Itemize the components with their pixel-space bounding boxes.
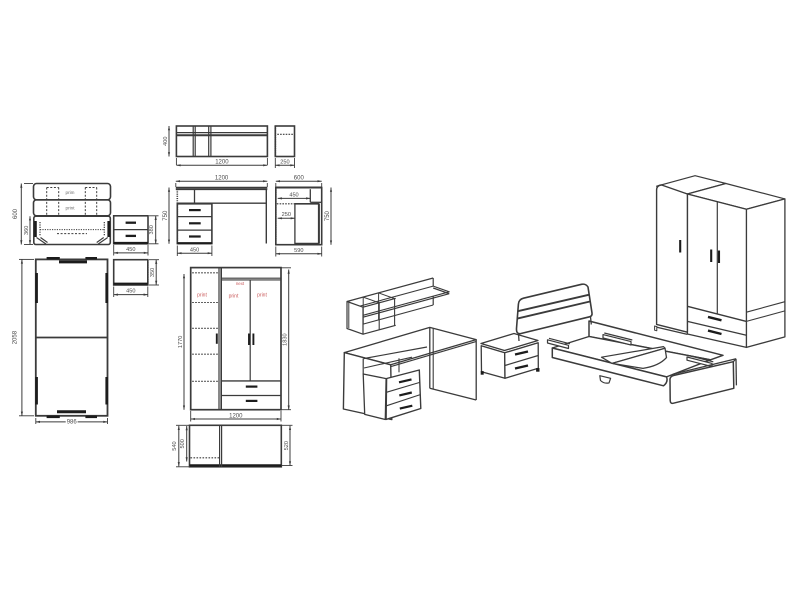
svg-text:print: print [229, 293, 239, 299]
svg-text:400: 400 [163, 137, 169, 146]
svg-text:print: print [257, 293, 267, 299]
svg-text:450: 450 [190, 247, 199, 253]
svg-text:250: 250 [280, 159, 289, 165]
svg-text:450: 450 [126, 247, 135, 253]
svg-text:450: 450 [289, 193, 298, 199]
svg-text:750: 750 [163, 210, 169, 221]
svg-text:600: 600 [294, 176, 305, 182]
svg-text:540: 540 [172, 441, 178, 450]
svg-text:1200: 1200 [215, 176, 229, 182]
svg-text:next: next [236, 281, 245, 286]
svg-text:380: 380 [149, 225, 155, 234]
svg-text:450: 450 [126, 288, 135, 294]
svg-text:1830: 1830 [282, 333, 288, 345]
svg-text:250: 250 [282, 212, 291, 218]
svg-text:prim: prim [66, 190, 75, 195]
svg-text:1770: 1770 [178, 336, 184, 348]
svg-text:print: print [66, 205, 76, 210]
svg-text:590: 590 [294, 248, 303, 254]
svg-text:print: print [197, 293, 207, 299]
svg-text:520: 520 [284, 441, 290, 450]
svg-text:1200: 1200 [215, 160, 229, 166]
svg-text:500: 500 [180, 439, 186, 448]
svg-text:986: 986 [67, 419, 78, 425]
svg-text:360: 360 [24, 226, 30, 235]
svg-text:350: 350 [150, 268, 156, 277]
svg-text:750: 750 [325, 210, 331, 221]
svg-text:2058: 2058 [13, 330, 19, 344]
svg-text:600: 600 [13, 208, 19, 219]
svg-text:1200: 1200 [229, 413, 243, 419]
